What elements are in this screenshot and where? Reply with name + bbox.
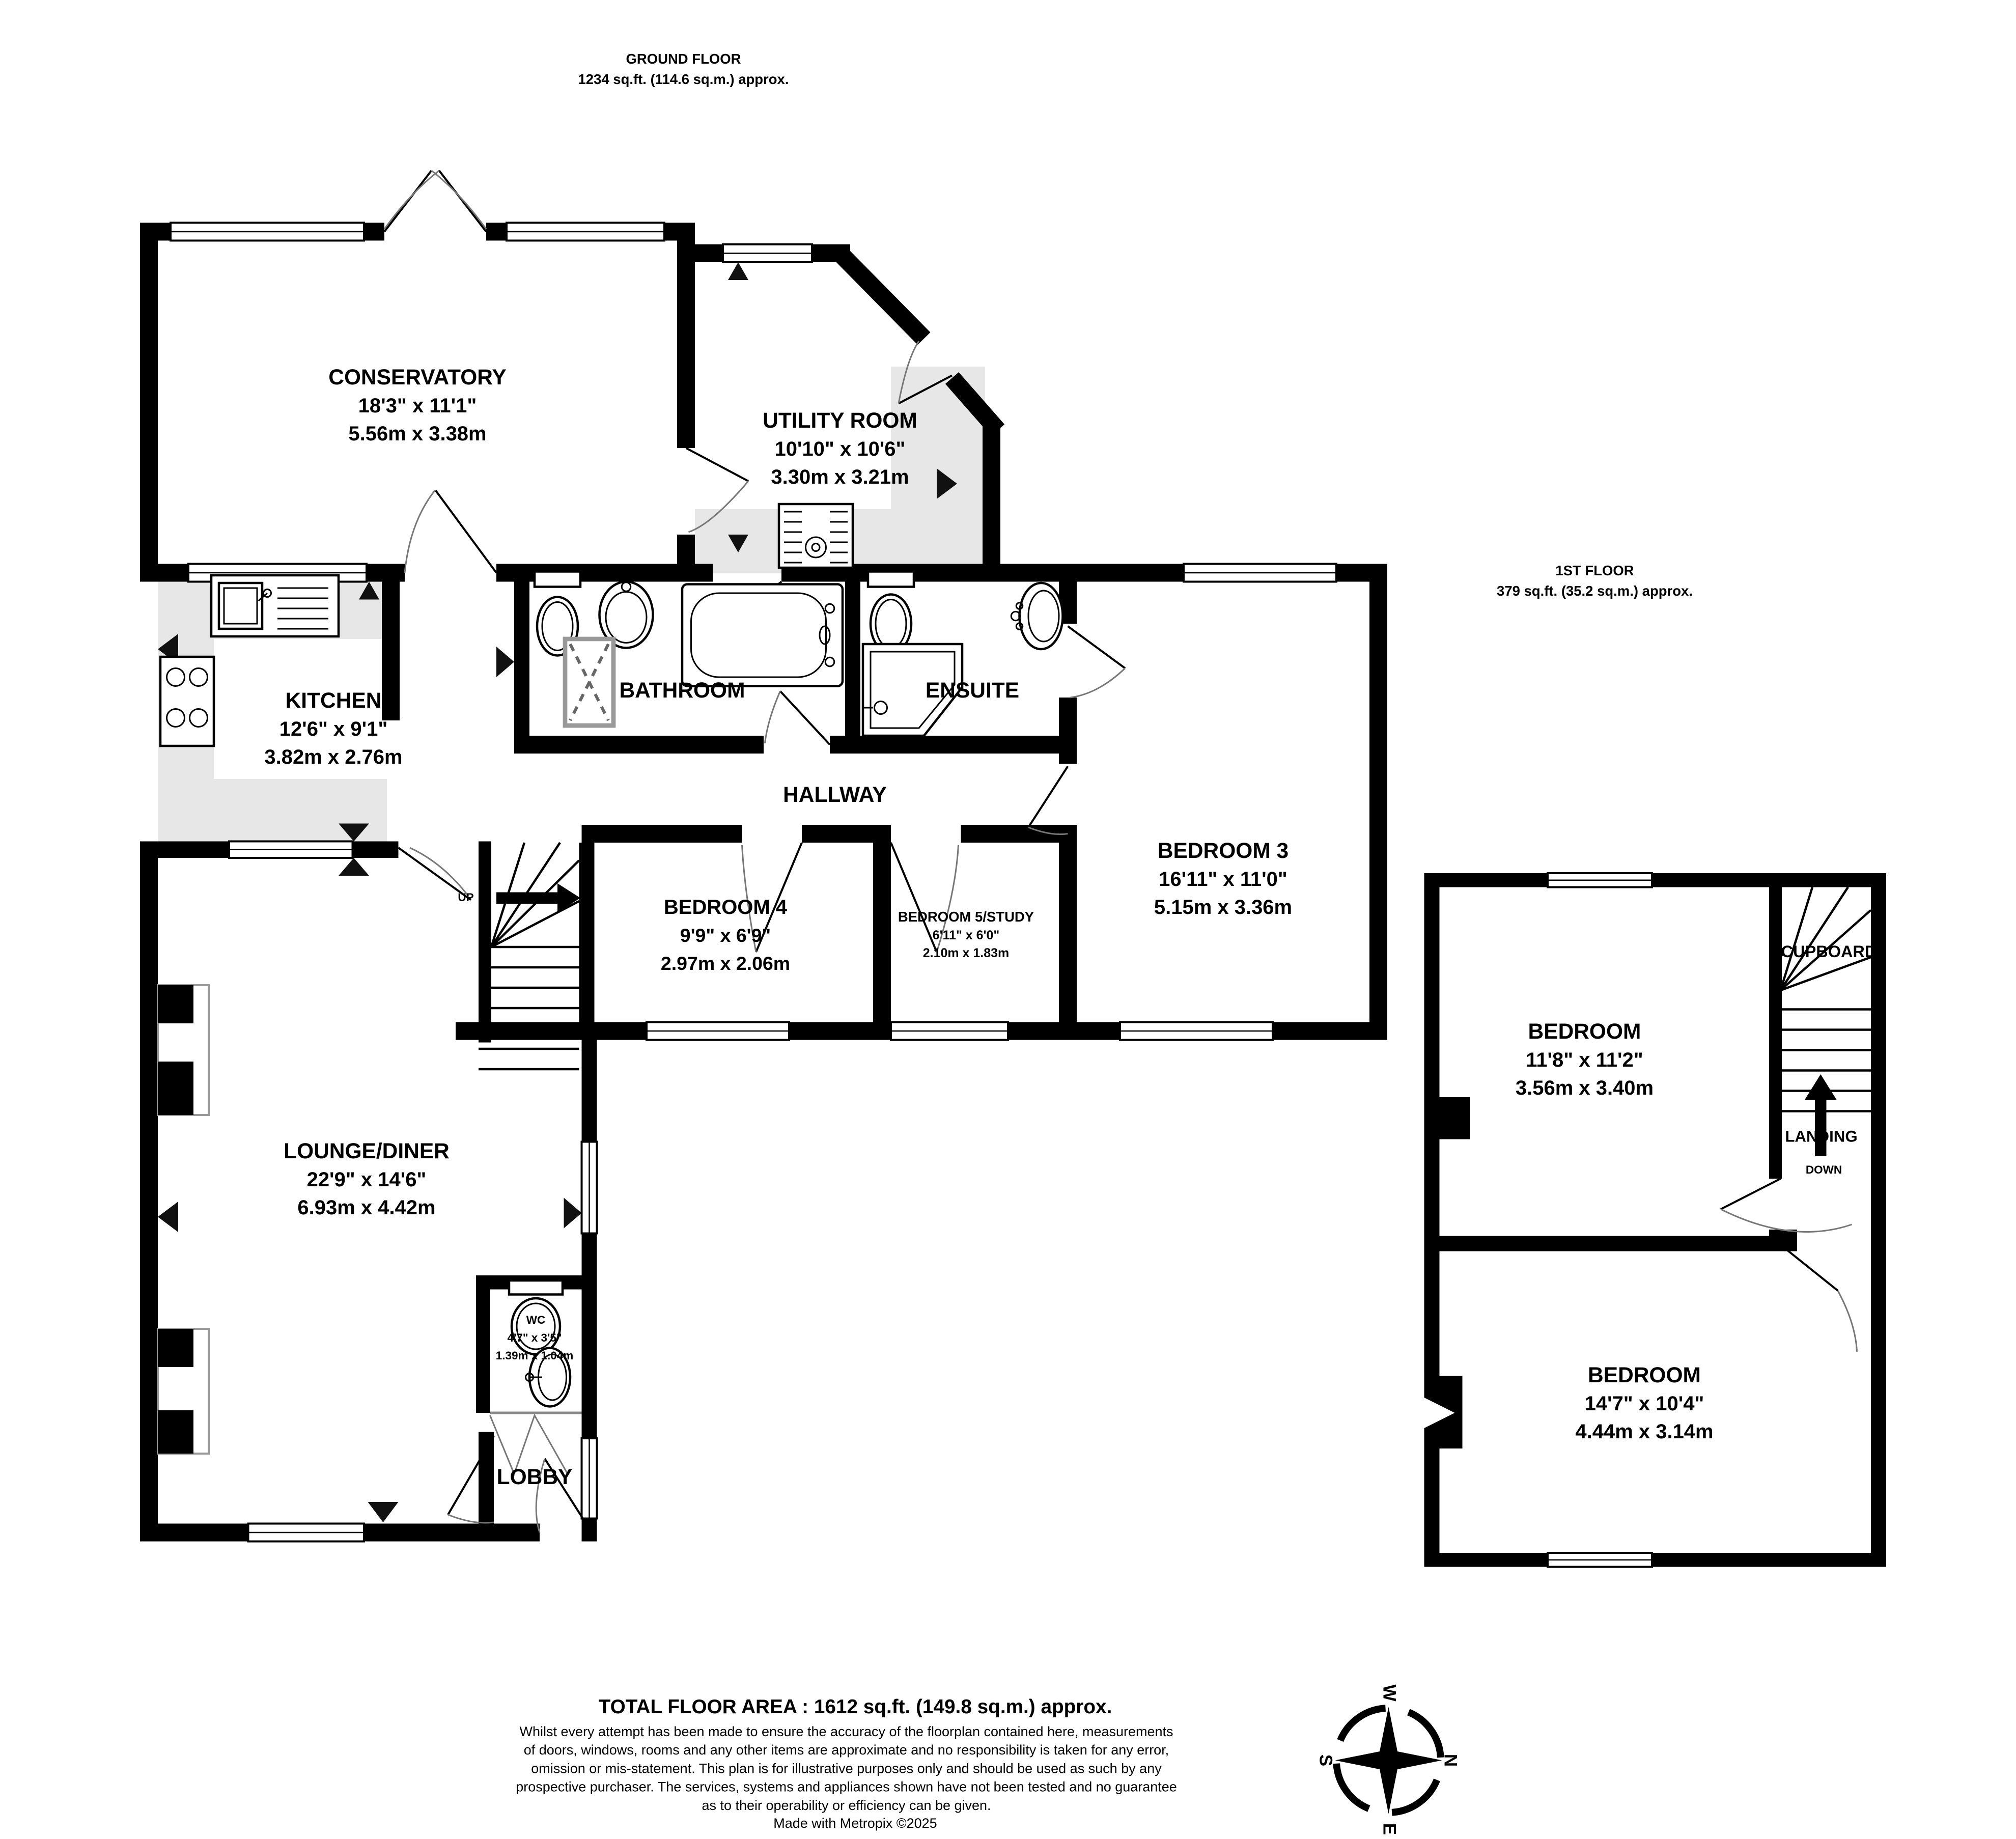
- disclaimer-line: omission or mis-statement. This plan is …: [531, 1761, 1162, 1776]
- floorplan-canvas: GROUND FLOOR 1234 sq.ft. (114.6 sq.m.) a…: [0, 0, 2016, 1839]
- window: [582, 1438, 597, 1518]
- room-bedroom3: BEDROOM 3 16'11" x 11'0" 5.15m x 3.36m: [1154, 839, 1292, 918]
- room-name: BEDROOM 4: [664, 896, 788, 918]
- room-bedroom-ff-top: BEDROOM 11'8" x 11'2" 3.56m x 3.40m: [1516, 1020, 1654, 1099]
- ground-floor-title: GROUND FLOOR: [626, 51, 741, 67]
- room-dims-imperial: 12'6" x 9'1": [279, 718, 388, 740]
- disclaimer-line: of doors, windows, rooms and any other i…: [524, 1742, 1169, 1758]
- room-name: LOUNGE/DINER: [284, 1139, 450, 1163]
- room-bathroom-label: BATHROOM: [619, 679, 745, 703]
- toilet-icon: [868, 571, 914, 587]
- stairs-down-label: DOWN: [1806, 1163, 1842, 1176]
- toilet-icon: [535, 571, 580, 587]
- room-dims-imperial: 22'9" x 14'6": [307, 1168, 427, 1191]
- room-bedroom4: BEDROOM 4 9'9" x 6'9" 2.97m x 2.06m: [661, 896, 790, 974]
- total-floor-area: TOTAL FLOOR AREA : 1612 sq.ft. (149.8 sq…: [599, 1696, 1112, 1718]
- shower-icon: [565, 639, 613, 726]
- compass-east: E: [1379, 1823, 1399, 1835]
- room-dims-metric: 6.93m x 4.42m: [297, 1196, 435, 1219]
- triangle-up-icon: [728, 262, 748, 280]
- window: [507, 222, 664, 240]
- room-dims-metric: 2.97m x 2.06m: [661, 953, 790, 974]
- room-dims-imperial: 6'11" x 6'0": [933, 928, 999, 942]
- sink-icon: [1020, 583, 1063, 649]
- disclaimer-line: Whilst every attempt has been made to en…: [520, 1724, 1173, 1739]
- window: [1548, 1553, 1652, 1567]
- compass-west: W: [1379, 1684, 1399, 1701]
- compass-north: N: [1440, 1754, 1460, 1767]
- stairs-up-label: UP: [458, 891, 473, 904]
- room-dims-imperial: 4'7" x 3'5": [507, 1331, 562, 1344]
- room-conservatory: CONSERVATORY 18'3" x 11'1" 5.56m x 3.38m: [328, 366, 506, 445]
- disclaimer-line: prospective purchaser. The services, sys…: [516, 1779, 1177, 1795]
- window: [248, 1523, 364, 1541]
- room-lobby-label: LOBBY: [497, 1465, 573, 1489]
- room-cupboard-label: CUPBOARD: [1781, 942, 1877, 961]
- room-ensuite-label: ENSUITE: [926, 679, 1019, 703]
- room-kitchen: KITCHEN 12'6" x 9'1" 3.82m x 2.76m: [264, 689, 402, 768]
- window: [582, 1141, 597, 1233]
- room-bedroom-ff-bottom: BEDROOM 14'7" x 10'4" 4.44m x 3.14m: [1575, 1363, 1713, 1443]
- room-landing-label: LANDING: [1785, 1127, 1857, 1145]
- ground-floor-header: GROUND FLOOR 1234 sq.ft. (114.6 sq.m.) a…: [578, 51, 789, 87]
- utility-fixtures: [779, 504, 853, 568]
- room-hallway-label: HALLWAY: [783, 783, 887, 807]
- window: [891, 1022, 1008, 1040]
- room-dims-metric: 2.10m x 1.83m: [923, 946, 1009, 960]
- room-dims-imperial: 9'9" x 6'9": [680, 925, 771, 946]
- room-dims-metric: 3.82m x 2.76m: [264, 746, 402, 768]
- room-wc: WC 4'7" x 3'5" 1.39m x 1.04m: [496, 1314, 574, 1362]
- room-dims-imperial: 16'11" x 11'0": [1159, 868, 1287, 890]
- room-utility: UTILITY ROOM 10'10" x 10'6" 3.30m x 3.21…: [763, 409, 917, 488]
- room-name: CONSERVATORY: [328, 366, 506, 389]
- compass-south: S: [1315, 1754, 1335, 1766]
- room-name: UTILITY ROOM: [763, 409, 917, 433]
- room-dims-metric: 3.56m x 3.40m: [1516, 1077, 1654, 1099]
- stove-icon: [160, 657, 214, 746]
- floorplan-page: GROUND FLOOR 1234 sq.ft. (114.6 sq.m.) a…: [0, 0, 2016, 1839]
- triangle-left-icon: [158, 1202, 178, 1232]
- credit-line: Made with Metropix ©2025: [773, 1816, 937, 1831]
- triangle-up-icon: [339, 858, 369, 876]
- room-dims-imperial: 10'10" x 10'6": [774, 438, 905, 460]
- room-name: BEDROOM 5/STUDY: [898, 909, 1034, 925]
- compass-icon: W N E S: [1315, 1684, 1460, 1835]
- room-dims-metric: 4.44m x 3.14m: [1575, 1420, 1713, 1443]
- room-bedroom5: BEDROOM 5/STUDY 6'11" x 6'0" 2.10m x 1.8…: [898, 909, 1034, 960]
- room-dims-imperial: 14'7" x 10'4": [1585, 1392, 1704, 1415]
- bath-icon: [682, 584, 843, 686]
- window: [229, 841, 352, 858]
- room-dims-metric: 5.56m x 3.38m: [348, 423, 486, 445]
- room-name: BEDROOM: [1528, 1020, 1641, 1044]
- room-name: KITCHEN: [286, 689, 382, 713]
- window: [1548, 873, 1652, 887]
- footer: TOTAL FLOOR AREA : 1612 sq.ft. (149.8 sq…: [516, 1696, 1177, 1831]
- window: [171, 222, 364, 240]
- room-dims-metric: 3.30m x 3.21m: [771, 466, 909, 488]
- ensuite-fixtures: [863, 571, 1062, 735]
- room-dims-metric: 1.39m x 1.04m: [496, 1349, 574, 1362]
- room-name: BEDROOM 3: [1158, 839, 1289, 863]
- disclaimer-line: as to their operability or efficiency ca…: [702, 1798, 991, 1813]
- room-lounge: LOUNGE/DINER 22'9" x 14'6" 6.93m x 4.42m: [284, 1139, 450, 1219]
- toilet-icon: [509, 1280, 563, 1294]
- ground-floor-area: 1234 sq.ft. (114.6 sq.m.) approx.: [578, 71, 789, 87]
- window: [723, 244, 812, 262]
- triangle-right-icon: [564, 1197, 582, 1228]
- room-dims-metric: 5.15m x 3.36m: [1154, 896, 1292, 918]
- window: [1184, 564, 1336, 581]
- triangle-right-icon: [496, 647, 514, 677]
- room-name: WC: [526, 1314, 545, 1326]
- first-floor-header: 1ST FLOOR 379 sq.ft. (35.2 sq.m.) approx…: [1497, 563, 1693, 599]
- window: [1120, 1022, 1273, 1040]
- window: [647, 1022, 789, 1040]
- room-dims-imperial: 18'3" x 11'1": [358, 395, 477, 417]
- triangle-down-icon: [368, 1502, 399, 1522]
- room-dims-imperial: 11'8" x 11'2": [1526, 1049, 1643, 1071]
- first-floor-area: 379 sq.ft. (35.2 sq.m.) approx.: [1497, 583, 1693, 599]
- first-floor-title: 1ST FLOOR: [1555, 563, 1634, 578]
- room-name: BEDROOM: [1588, 1363, 1701, 1387]
- first-floor-windows: [1548, 873, 1652, 1567]
